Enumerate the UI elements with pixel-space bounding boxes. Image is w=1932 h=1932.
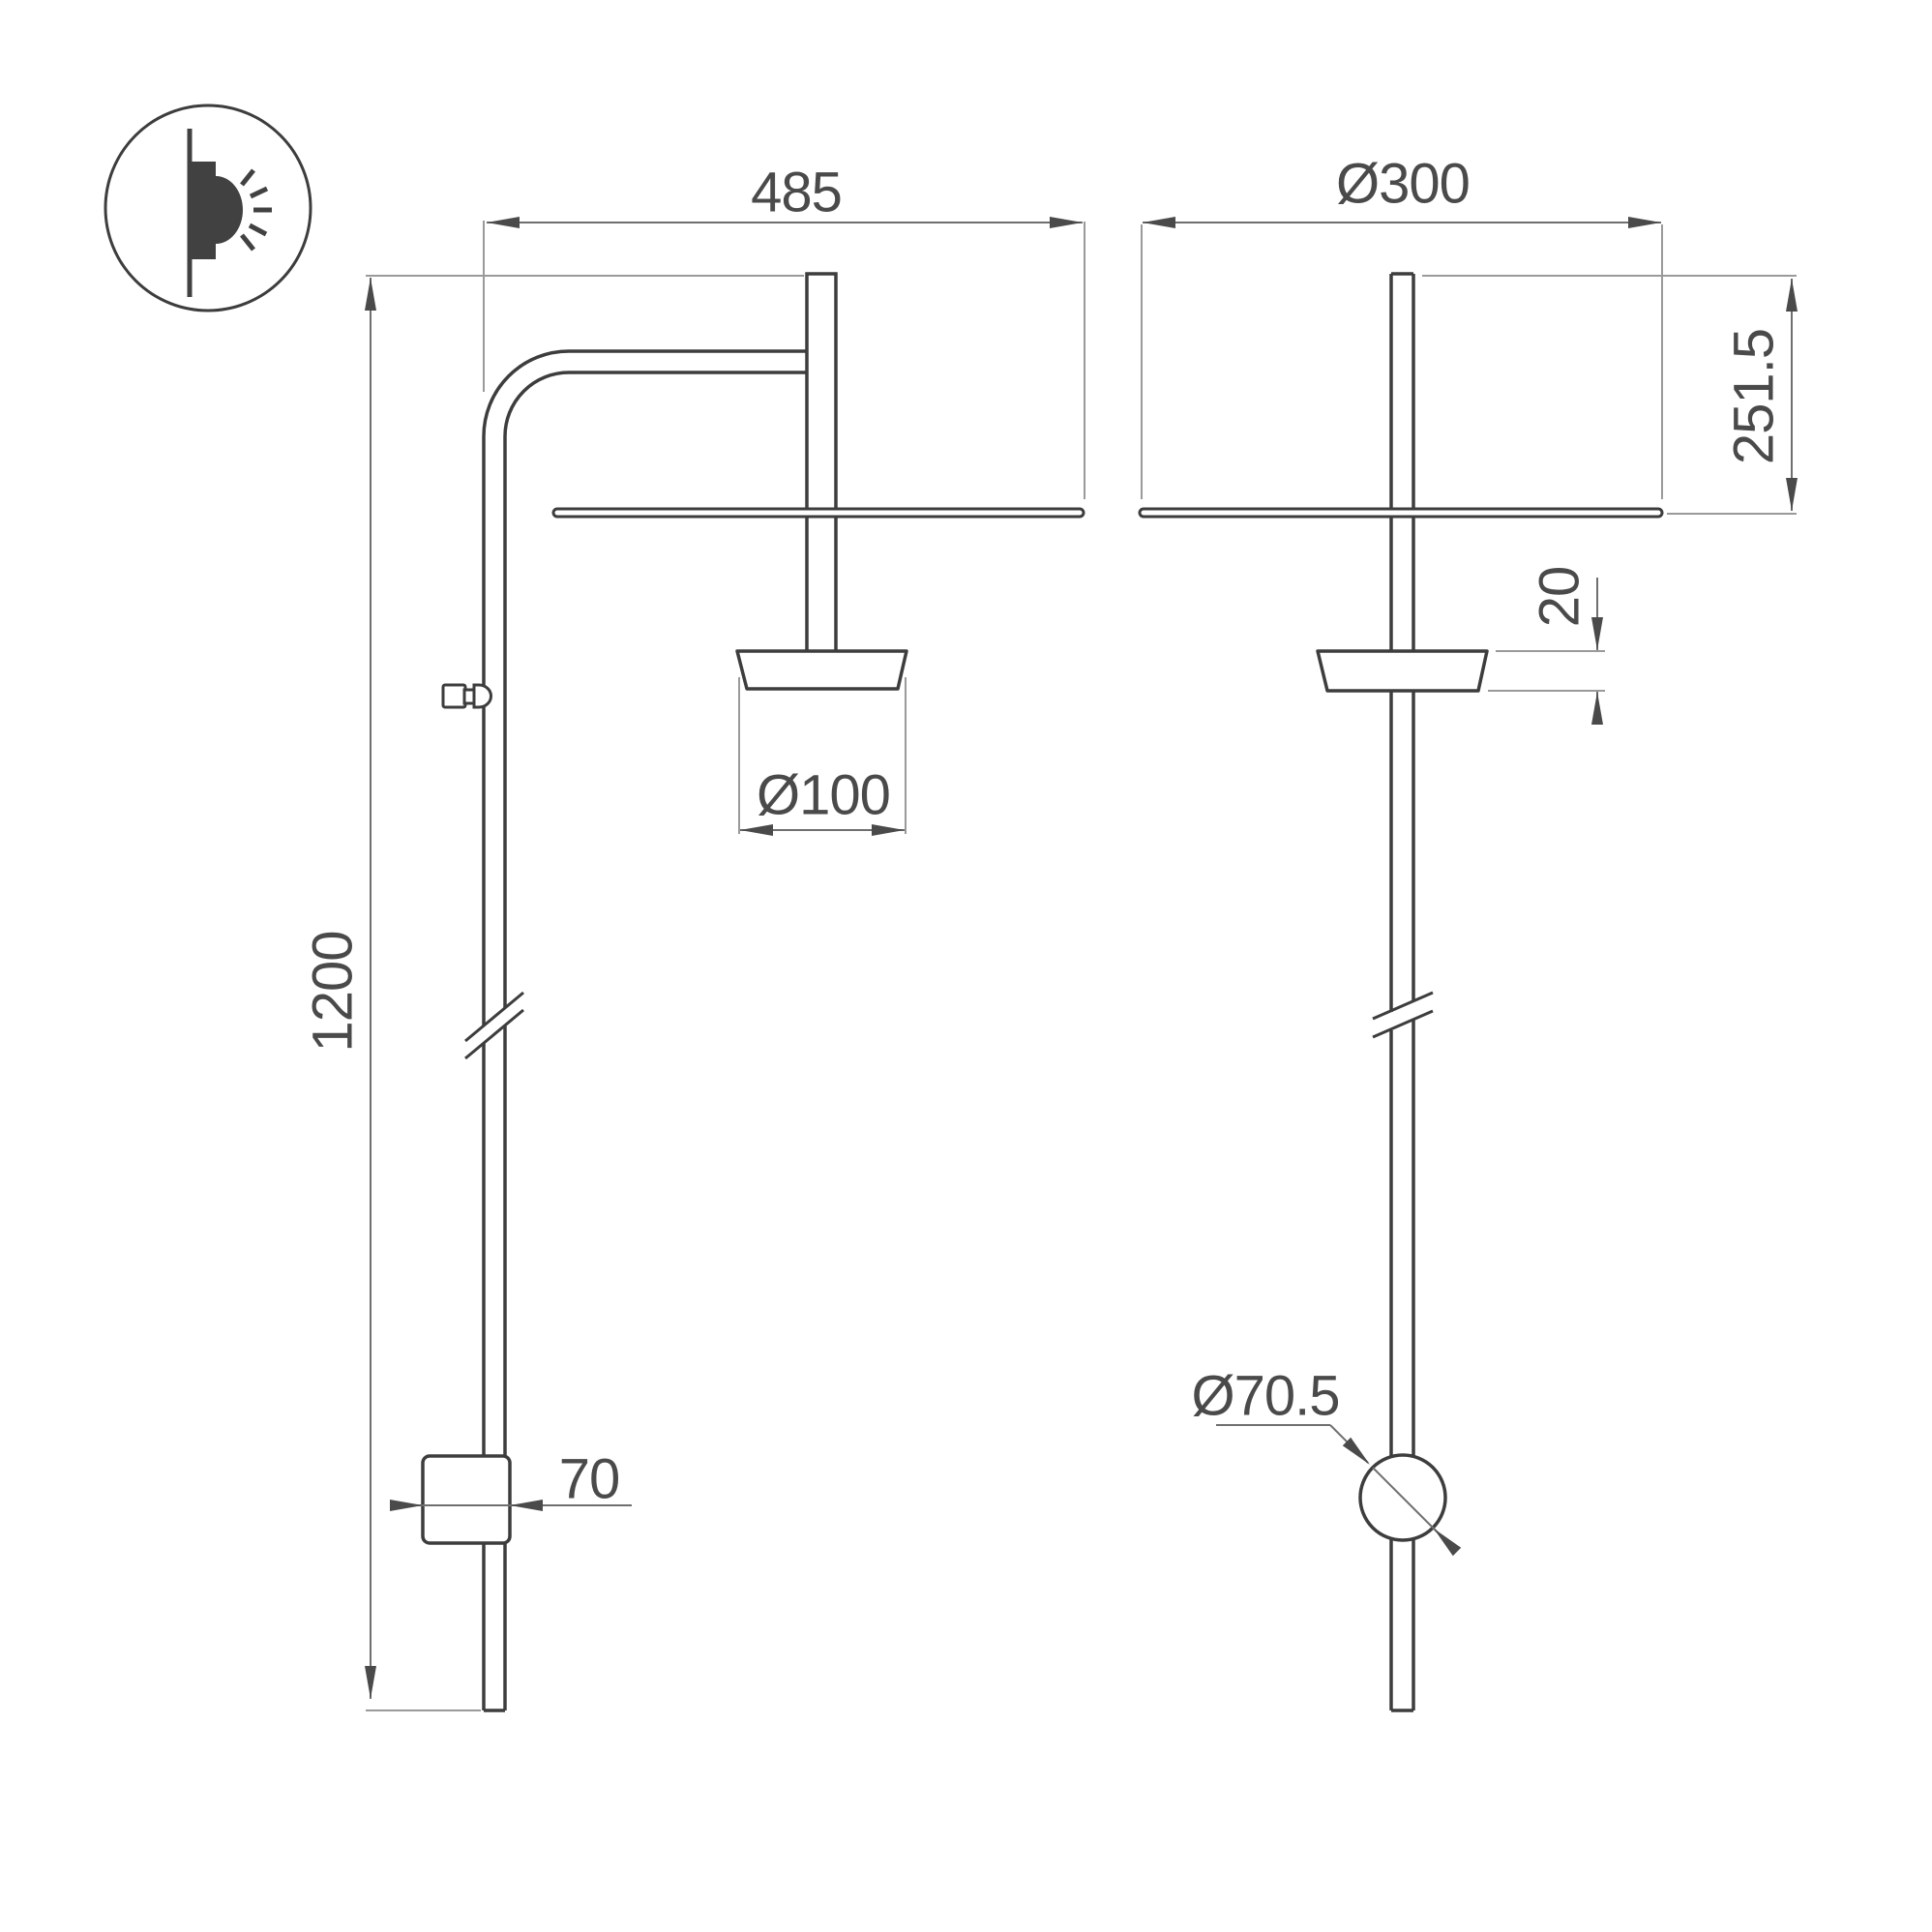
disc-front	[1140, 509, 1662, 517]
switch-knob	[443, 685, 490, 707]
arm-outer-line	[484, 351, 807, 436]
dimension-d100: Ø100	[740, 764, 905, 837]
disc-side	[553, 509, 1084, 517]
mount-box-side	[423, 1456, 510, 1543]
dim-box-width-label: 70	[559, 1448, 620, 1511]
dimension-1200: 1200	[302, 278, 377, 1699]
side-view	[423, 274, 1084, 1710]
dim-mount-diameter-label: Ø70.5	[1192, 1365, 1340, 1428]
dimension-251-5: 251.5	[1723, 279, 1798, 511]
dimension-d300: Ø300	[1143, 153, 1661, 229]
wall-light-icon	[105, 105, 311, 311]
stem-break-symbol	[1373, 993, 1433, 1037]
lamp-head-side	[737, 651, 907, 689]
dim-arm-width-label: 485	[751, 162, 842, 224]
technical-drawing: 485 1200 Ø100 70 Ø300 251.5 20	[0, 0, 1932, 1932]
icon-light-rays	[242, 170, 272, 250]
dim-top-to-disc-label: 251.5	[1723, 329, 1786, 464]
icon-lamp-body	[192, 162, 216, 259]
dimension-485: 485	[487, 162, 1083, 229]
dim-total-height-label: 1200	[302, 931, 365, 1052]
dim-head-diameter-label: Ø100	[757, 764, 890, 827]
drawing-canvas: 485 1200 Ø100 70 Ø300 251.5 20	[0, 0, 1932, 1932]
pole-break-symbol	[465, 993, 523, 1058]
dim-head-thickness-label: 20	[1529, 567, 1591, 628]
icon-lamp-glow	[216, 176, 243, 244]
dimension-20: 20	[1529, 567, 1604, 725]
arm-inner-line	[505, 372, 807, 436]
stem-side	[807, 274, 836, 653]
dim-disc-diameter-label: Ø300	[1336, 153, 1470, 216]
lamp-head-front	[1318, 651, 1487, 691]
